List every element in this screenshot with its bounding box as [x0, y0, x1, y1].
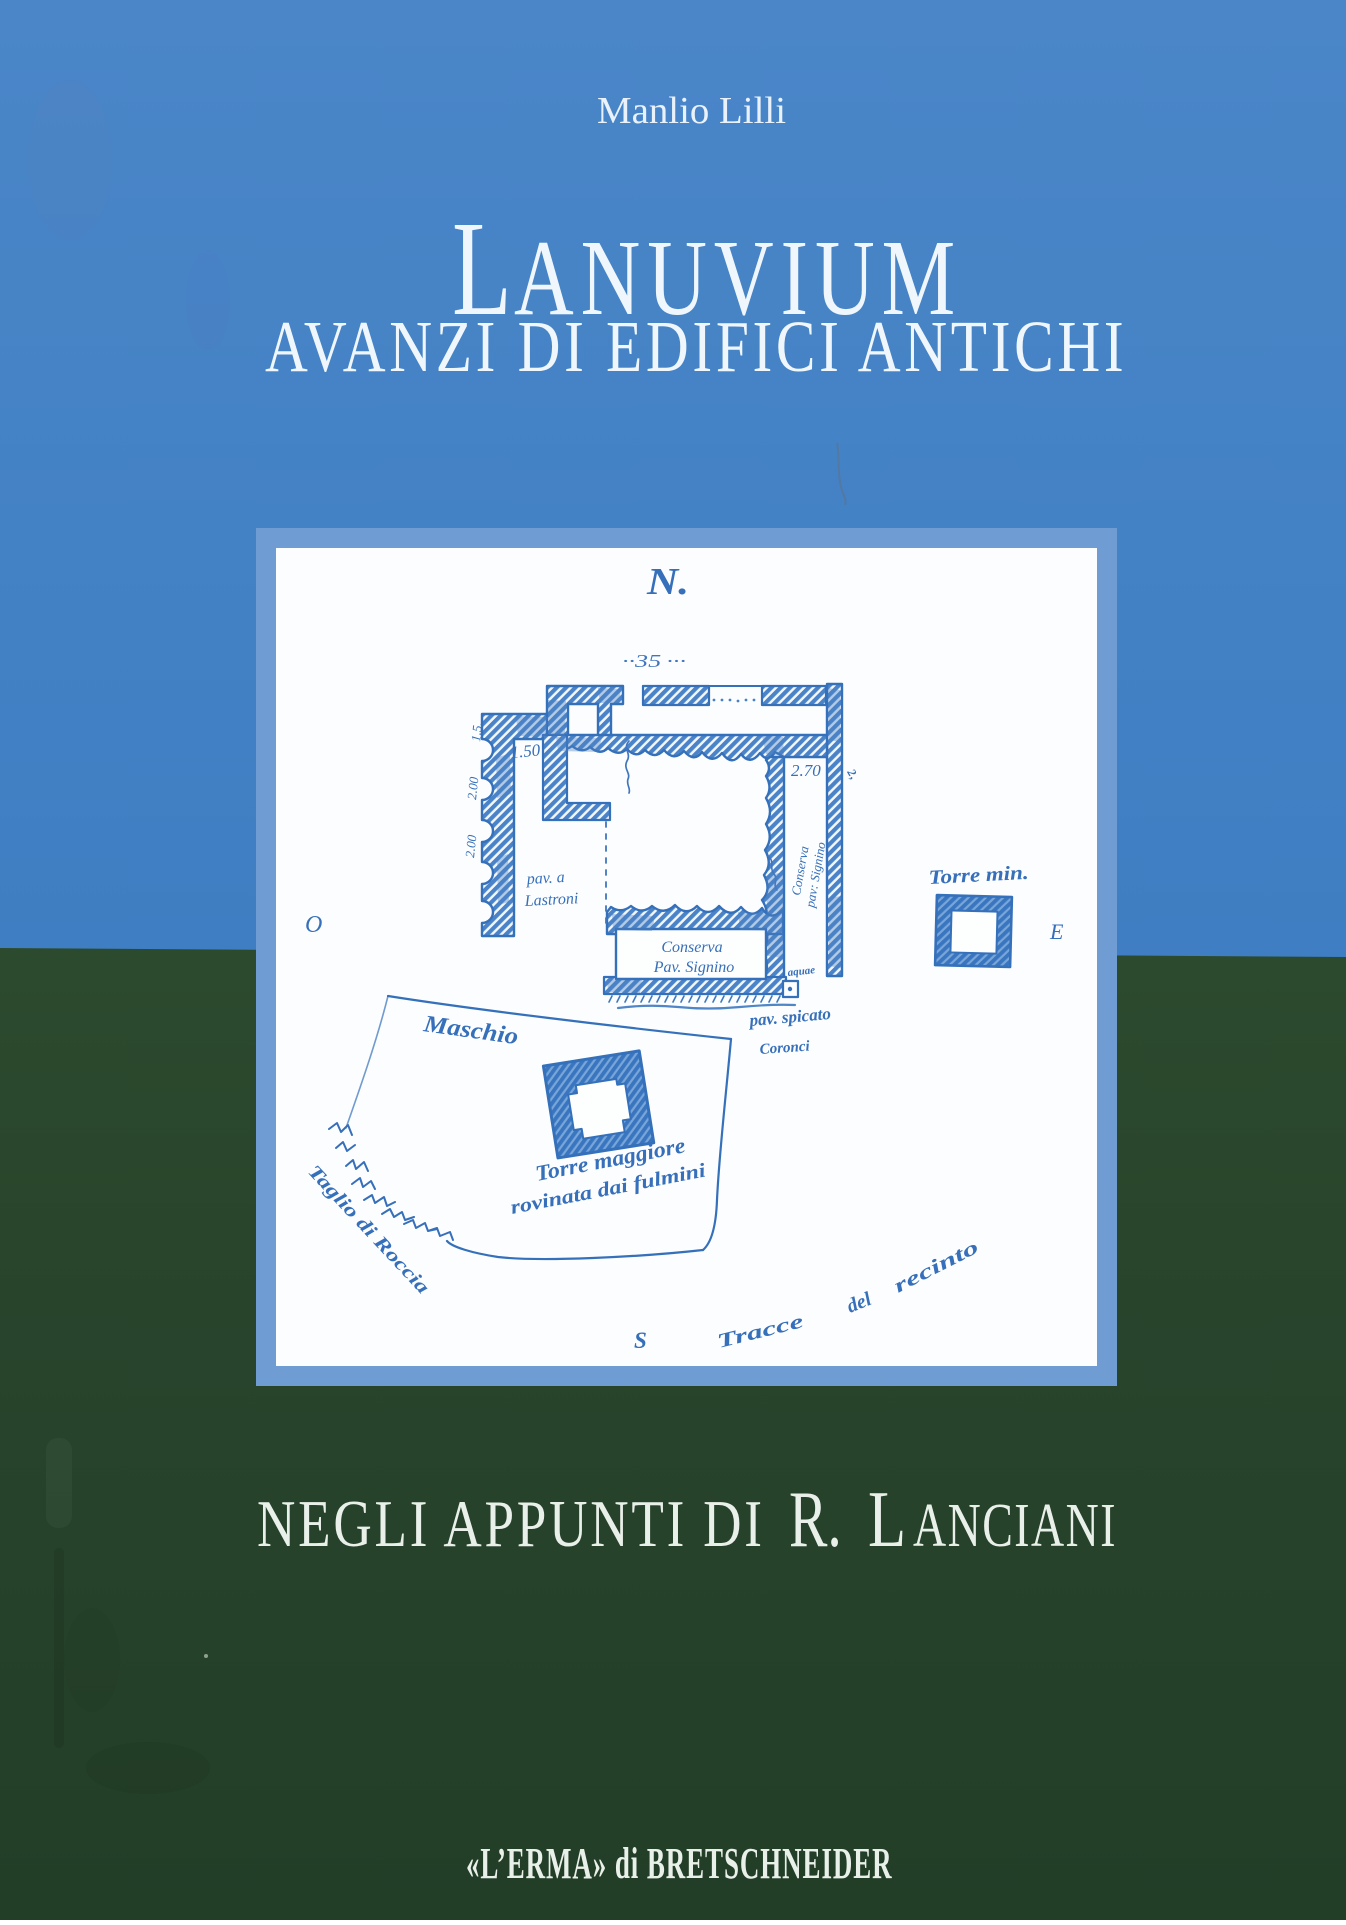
svg-text:N.: N.	[646, 561, 689, 603]
svg-text:L: L	[868, 1475, 906, 1564]
svg-text:R.: R.	[789, 1476, 842, 1564]
svg-text:Pav. Signino: Pav. Signino	[653, 959, 735, 976]
svg-text:Conserva: Conserva	[661, 939, 722, 956]
svg-text:2.00: 2.00	[462, 834, 479, 859]
svg-text:«L’ERMA» di BRETSCHNEIDER: «L’ERMA» di BRETSCHNEIDER	[466, 1838, 893, 1887]
svg-text:1.50: 1.50	[510, 740, 542, 762]
svg-text:S: S	[634, 1328, 647, 1353]
svg-text:O: O	[305, 912, 322, 938]
svg-text:pav. a: pav. a	[525, 869, 565, 888]
svg-text:ANCIANI: ANCIANI	[913, 1490, 1117, 1559]
svg-text:2.00: 2.00	[464, 776, 481, 801]
svg-text:··35 ···: ··35 ···	[622, 651, 686, 671]
svg-text:E: E	[1049, 919, 1064, 944]
svg-text:AVANZI DI EDIFICI ANTICHI: AVANZI DI EDIFICI ANTICHI	[265, 307, 1127, 387]
svg-text:2.70: 2.70	[791, 761, 821, 780]
svg-text:NEGLI APPUNTI DI: NEGLI APPUNTI DI	[257, 1487, 765, 1561]
svg-text:Lastroni: Lastroni	[523, 890, 578, 910]
svg-text:Manlio Lilli: Manlio Lilli	[597, 90, 786, 132]
svg-text:1.5.: 1.5.	[468, 721, 485, 742]
